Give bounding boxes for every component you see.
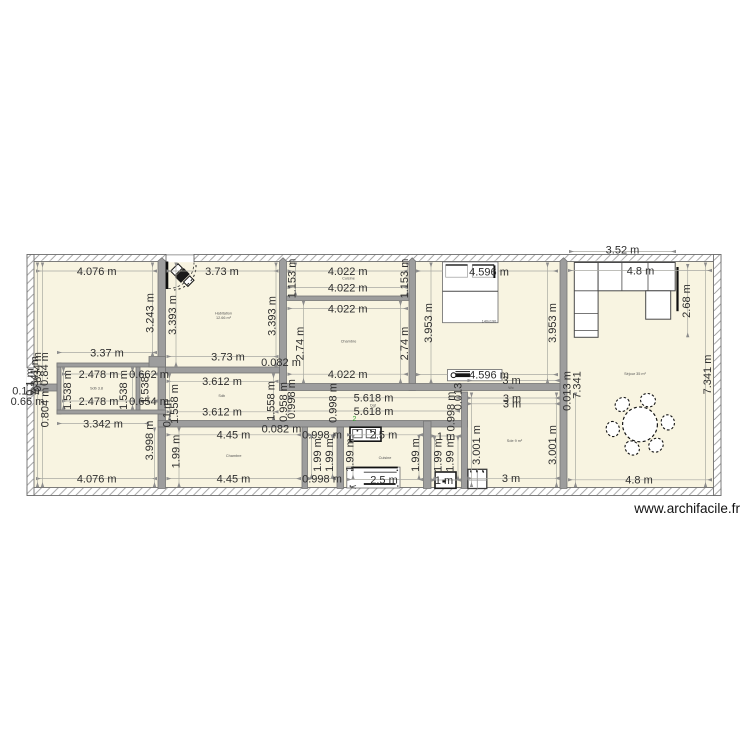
svg-text:3.998 m: 3.998 m bbox=[144, 421, 156, 461]
svg-text:1.99 m: 1.99 m bbox=[410, 438, 422, 472]
svg-text:2.5 m: 2.5 m bbox=[370, 474, 398, 486]
svg-text:Chambre: Chambre bbox=[226, 454, 242, 458]
svg-text:3.953 m: 3.953 m bbox=[547, 303, 559, 343]
svg-text:Sdb: Sdb bbox=[218, 394, 225, 398]
svg-text:Sde 9 m²: Sde 9 m² bbox=[507, 439, 523, 443]
svg-text:7.341: 7.341 bbox=[572, 371, 584, 399]
svg-text:4.596 m: 4.596 m bbox=[469, 266, 509, 278]
svg-text:0.998 m: 0.998 m bbox=[302, 473, 342, 485]
svg-text:4.8 m: 4.8 m bbox=[625, 475, 653, 487]
svg-text:Sdb 3.8: Sdb 3.8 bbox=[90, 387, 103, 391]
svg-text:3 m: 3 m bbox=[502, 375, 520, 387]
svg-text:www.archifacile.fr: www.archifacile.fr bbox=[633, 501, 740, 516]
svg-text:Wc: Wc bbox=[508, 386, 514, 390]
svg-text:1.99 m: 1.99 m bbox=[344, 438, 356, 472]
svg-text:3.37 m: 3.37 m bbox=[90, 347, 124, 359]
svg-text:0.082 m: 0.082 m bbox=[262, 424, 302, 436]
svg-text:1.99 m: 1.99 m bbox=[324, 438, 336, 472]
svg-text:1.538 m: 1.538 m bbox=[118, 370, 130, 410]
svg-text:4.022 m: 4.022 m bbox=[328, 282, 368, 294]
svg-text:4.8 m: 4.8 m bbox=[627, 265, 655, 277]
svg-text:2.478 m: 2.478 m bbox=[79, 396, 119, 408]
svg-text:2.74 m: 2.74 m bbox=[399, 327, 411, 361]
svg-text:1.99 m: 1.99 m bbox=[170, 435, 182, 469]
svg-text:1.99 m: 1.99 m bbox=[312, 438, 324, 472]
svg-text:3.393 m: 3.393 m bbox=[266, 296, 278, 336]
svg-text:0.013: 0.013 bbox=[453, 383, 465, 411]
svg-text:5.618 m: 5.618 m bbox=[354, 406, 394, 418]
svg-text:3.612 m: 3.612 m bbox=[202, 376, 242, 388]
svg-text:2.478 m: 2.478 m bbox=[79, 369, 119, 381]
svg-text:0.804 m: 0.804 m bbox=[39, 388, 51, 428]
svg-text:0.84 m: 0.84 m bbox=[39, 352, 51, 386]
svg-text:0.998 m: 0.998 m bbox=[327, 383, 339, 423]
svg-text:1.538: 1.538 bbox=[139, 376, 151, 404]
svg-text:140x190: 140x190 bbox=[482, 320, 497, 324]
svg-text:7.341 m: 7.341 m bbox=[702, 355, 714, 395]
svg-text:4.022 m: 4.022 m bbox=[328, 369, 368, 381]
svg-text:4.076 m: 4.076 m bbox=[77, 474, 117, 486]
svg-text:Cuisine: Cuisine bbox=[379, 456, 392, 460]
svg-text:12.66 m²: 12.66 m² bbox=[216, 316, 232, 320]
svg-text:2.68 m: 2.68 m bbox=[681, 284, 693, 318]
svg-text:1.99 m: 1.99 m bbox=[444, 438, 456, 472]
svg-text:3.73 m: 3.73 m bbox=[211, 351, 245, 363]
svg-text:4.45 m: 4.45 m bbox=[217, 430, 251, 442]
svg-text:3.612 m: 3.612 m bbox=[202, 407, 242, 419]
svg-text:3.953 m: 3.953 m bbox=[423, 303, 435, 343]
svg-text:3.52 m: 3.52 m bbox=[606, 244, 640, 256]
svg-text:3.73 m: 3.73 m bbox=[205, 266, 239, 278]
svg-text:4.45 m: 4.45 m bbox=[217, 474, 251, 486]
svg-text:Dgt: Dgt bbox=[370, 403, 377, 407]
svg-text:Cuisine: Cuisine bbox=[342, 277, 355, 281]
svg-text:2.5 m: 2.5 m bbox=[370, 430, 398, 442]
svg-text:3.243 m: 3.243 m bbox=[144, 293, 156, 333]
svg-text:3 m: 3 m bbox=[503, 399, 521, 411]
svg-text:4.076 m: 4.076 m bbox=[77, 266, 117, 278]
svg-text:1.99 m: 1.99 m bbox=[432, 438, 444, 472]
svg-text:Séjour 35 m²: Séjour 35 m² bbox=[624, 372, 646, 376]
svg-text:3.393 m: 3.393 m bbox=[167, 295, 179, 335]
svg-text:3.001 m: 3.001 m bbox=[471, 425, 483, 465]
svg-text:2: 2 bbox=[353, 416, 357, 423]
svg-text:0.1 m: 0.1 m bbox=[162, 400, 174, 428]
svg-text:3.342 m: 3.342 m bbox=[83, 418, 123, 430]
svg-text:2.74 m: 2.74 m bbox=[294, 327, 306, 361]
svg-text:1.558 m: 1.558 m bbox=[265, 381, 277, 421]
svg-text:0.998 m: 0.998 m bbox=[286, 379, 298, 419]
svg-text:1 m: 1 m bbox=[435, 475, 453, 487]
svg-text:4.022 m: 4.022 m bbox=[328, 303, 368, 315]
svg-text:3.001 m: 3.001 m bbox=[547, 425, 559, 465]
svg-text:3 m: 3 m bbox=[502, 473, 520, 485]
svg-text:Chambre: Chambre bbox=[341, 340, 357, 344]
svg-text:1.153 m: 1.153 m bbox=[399, 259, 411, 299]
svg-text:1.538 m: 1.538 m bbox=[62, 370, 74, 410]
svg-text:1.153 m: 1.153 m bbox=[286, 259, 298, 299]
